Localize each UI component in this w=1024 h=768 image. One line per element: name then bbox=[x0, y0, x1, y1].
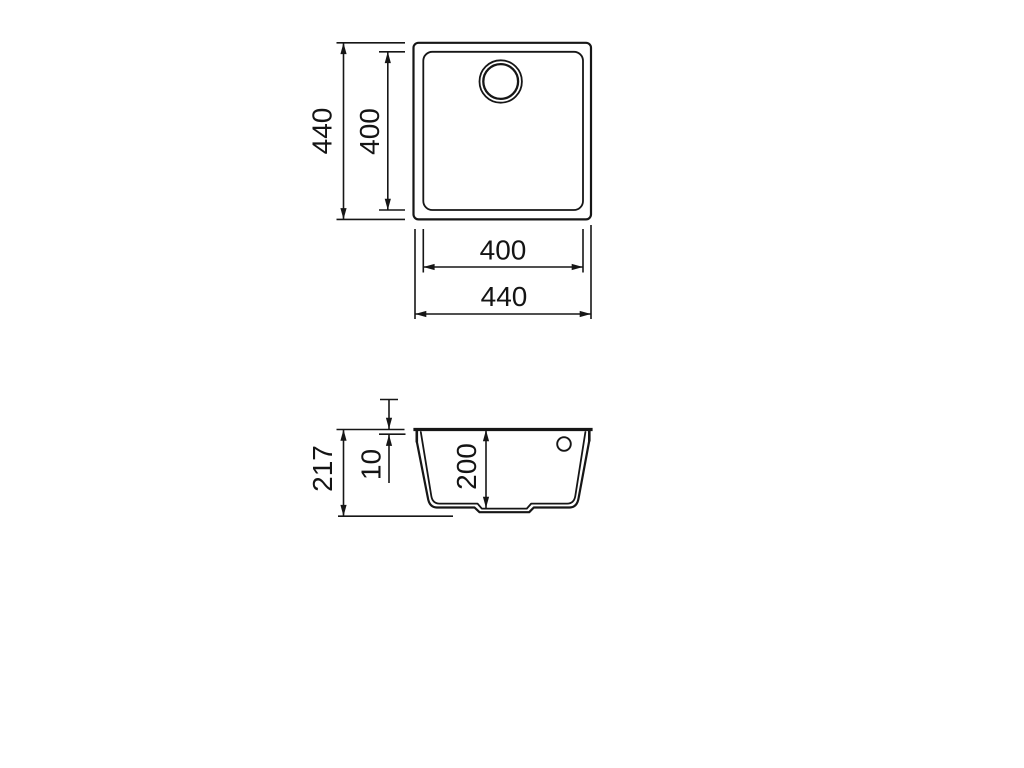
sink-technical-drawing-canvas: 440 400 400 440 bbox=[0, 0, 1024, 768]
dim-outer-width-label: 440 bbox=[481, 281, 528, 312]
overflow-hole-circle bbox=[557, 437, 571, 451]
section-bowl-inner-profile bbox=[421, 432, 586, 509]
sink-dimension-drawing: 440 400 400 440 bbox=[0, 0, 1024, 768]
section-view: 217 10 200 bbox=[307, 400, 591, 517]
dim-total-height-label: 217 bbox=[307, 445, 338, 492]
dim-inner-height: 400 bbox=[354, 52, 405, 210]
dim-rim-thickness: 10 bbox=[356, 400, 406, 484]
dim-inner-height-label: 400 bbox=[354, 108, 385, 155]
dim-inner-width-label: 400 bbox=[480, 235, 527, 266]
dim-bowl-depth-label: 200 bbox=[451, 443, 482, 490]
dim-inner-width: 400 bbox=[423, 229, 583, 273]
dim-bowl-depth: 200 bbox=[451, 430, 486, 508]
dim-rim-thickness-label: 10 bbox=[356, 449, 387, 480]
drain-circle bbox=[480, 60, 522, 102]
dim-outer-height-label: 440 bbox=[307, 108, 338, 155]
top-view-outer-rim bbox=[414, 43, 592, 220]
top-view-inner-bowl bbox=[423, 52, 583, 210]
top-view: 440 400 400 440 bbox=[307, 43, 592, 319]
